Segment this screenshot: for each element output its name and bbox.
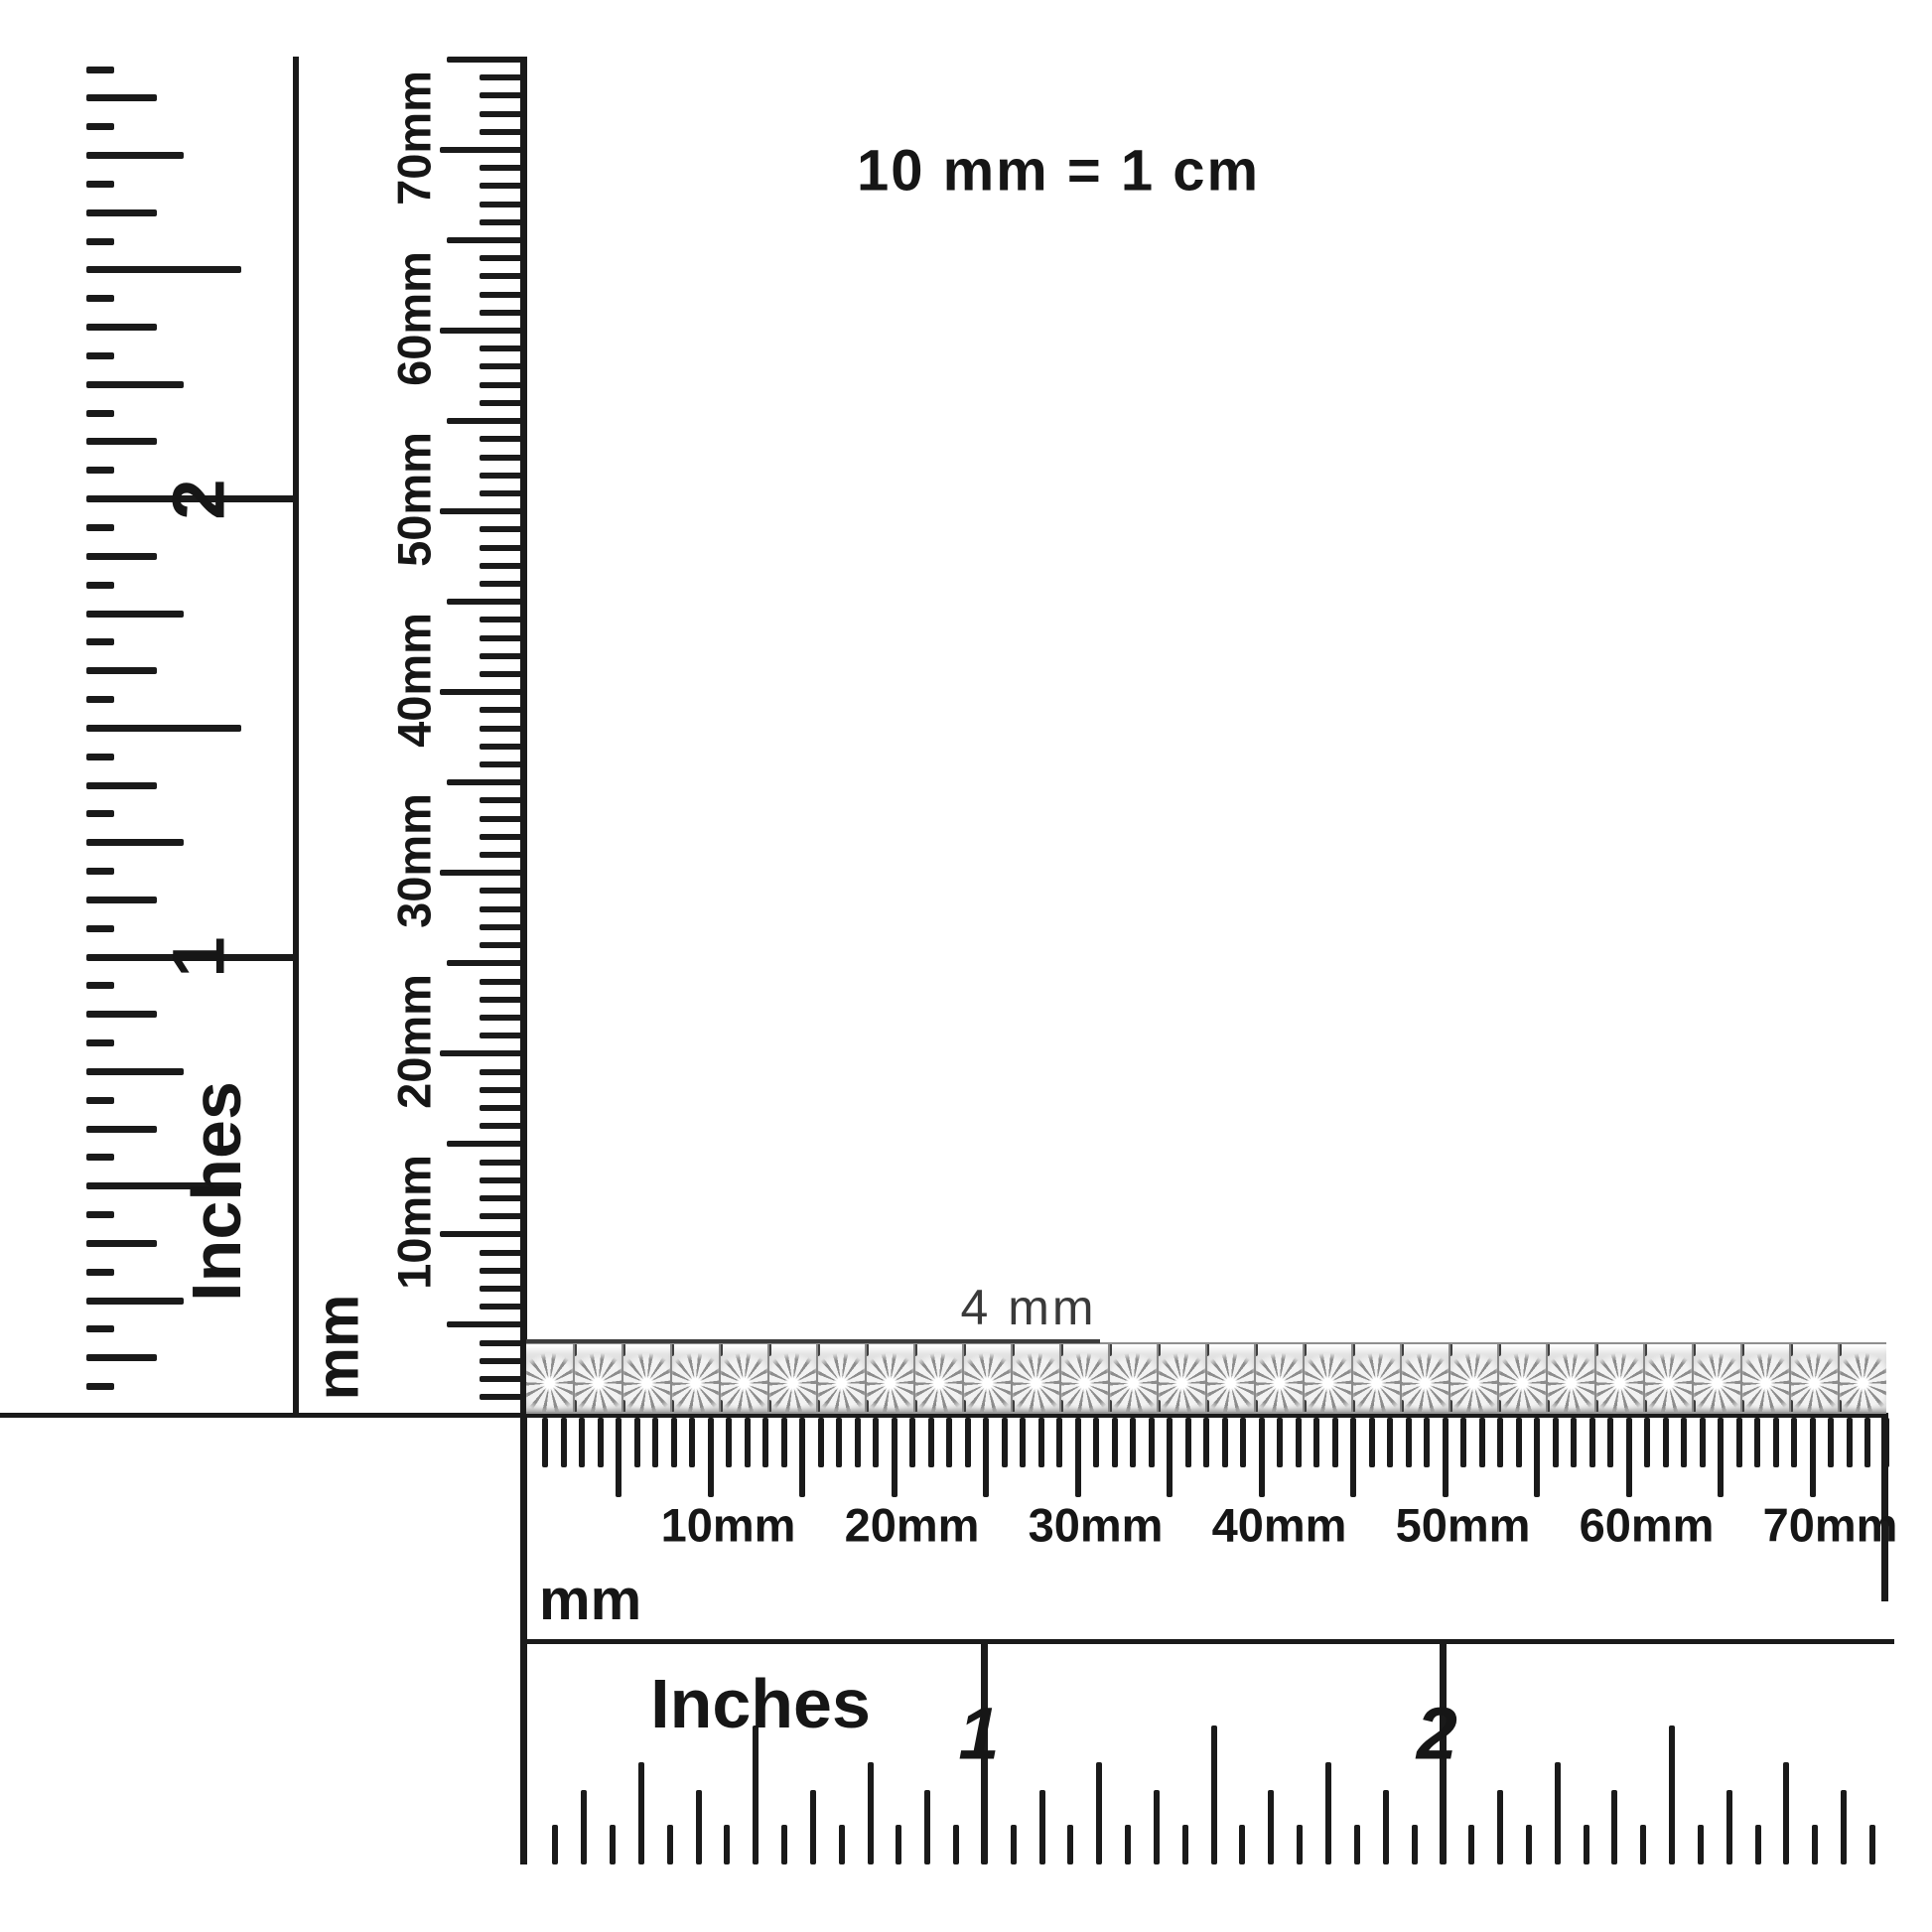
bottom-inch-tick xyxy=(667,1825,673,1864)
bottom-mm-tick xyxy=(1222,1418,1228,1467)
left-mm-tick xyxy=(447,1141,524,1147)
bracelet-link xyxy=(1157,1344,1205,1412)
bottom-mm-tick xyxy=(1663,1418,1669,1467)
bottom-mm-tick xyxy=(1369,1418,1375,1467)
bottom-mm-tick xyxy=(928,1418,934,1467)
bottom-mm-tick xyxy=(799,1418,805,1497)
left-mm-tick xyxy=(480,1015,524,1021)
left-mm-tick xyxy=(480,744,524,750)
left-mm-tick xyxy=(480,1376,524,1382)
bottom-inch-tick xyxy=(868,1762,874,1864)
bottom-inch-tick xyxy=(1698,1825,1704,1864)
left-inch-tick xyxy=(86,982,114,989)
left-mm-tick xyxy=(480,526,524,532)
left-mm-tick xyxy=(480,255,524,261)
left-mm-tick xyxy=(480,1177,524,1183)
bottom-mm-tick xyxy=(836,1418,842,1467)
bottom-inch-tick xyxy=(610,1825,616,1864)
left-inch-tick xyxy=(86,381,184,388)
bottom-inch-tick xyxy=(1526,1825,1532,1864)
left-mm-tick xyxy=(480,671,524,677)
bracelet-link xyxy=(1789,1344,1838,1412)
bottom-mm-tick xyxy=(1553,1418,1559,1467)
left-inch-tick xyxy=(86,467,114,474)
left-inch-tick xyxy=(86,324,157,331)
left-mm-tick xyxy=(447,1321,524,1327)
left-mm-tick xyxy=(480,1394,524,1400)
bracelet-link xyxy=(1351,1344,1400,1412)
bottom-mm-tick xyxy=(1313,1418,1319,1467)
bottom-inch-tick xyxy=(1726,1790,1732,1864)
bottom-mm-tick xyxy=(1203,1418,1209,1467)
bottom-mm-tick xyxy=(818,1418,824,1467)
bottom-mm-tick xyxy=(1497,1418,1503,1467)
bottom-inch-tick xyxy=(1669,1725,1675,1864)
bottom-mm-tick xyxy=(983,1418,989,1497)
bottom-inch-tick xyxy=(896,1825,901,1864)
left-inch-tick xyxy=(86,725,241,732)
left-inch-tick xyxy=(86,181,114,188)
left-mm-tick xyxy=(480,1087,524,1093)
bracelet-link xyxy=(1643,1344,1692,1412)
bottom-inch-tick xyxy=(924,1790,930,1864)
left-mm-tick xyxy=(440,870,524,876)
left-mm-tick xyxy=(447,599,524,605)
bottom-inch-tick xyxy=(1039,1790,1045,1864)
bottom-inch-tick xyxy=(1067,1825,1073,1864)
bottom-inch-tick xyxy=(552,1825,558,1864)
bottom-mm-tick xyxy=(781,1418,787,1467)
left-mm-tick xyxy=(480,273,524,279)
bottom-mm-tick xyxy=(1626,1418,1632,1497)
bottom-inch-tick xyxy=(953,1825,959,1864)
left-inch-tick xyxy=(86,925,114,932)
left-mm-tick xyxy=(480,490,524,496)
bottom-mm-label: 50mm xyxy=(1396,1498,1531,1553)
bottom-mm-tick xyxy=(616,1418,621,1497)
bottom-mm-tick xyxy=(1460,1418,1466,1467)
left-mm-label: 20mm xyxy=(387,974,442,1109)
bottom-inch-ruler-unit-label: Inches xyxy=(650,1664,871,1743)
left-mm-tick xyxy=(480,345,524,351)
left-inch-tick xyxy=(86,1011,157,1018)
bracelet-link xyxy=(1497,1344,1546,1412)
left-mm-tick xyxy=(480,1213,524,1219)
left-mm-tick xyxy=(480,563,524,569)
left-mm-tick xyxy=(480,92,524,98)
left-mm-tick xyxy=(480,942,524,948)
left-mm-tick xyxy=(480,202,524,207)
left-mm-tick xyxy=(480,111,524,117)
bottom-mm-tick xyxy=(1736,1418,1742,1467)
left-mm-tick xyxy=(480,979,524,985)
bracelet-link xyxy=(1254,1344,1303,1412)
bottom-mm-tick xyxy=(745,1418,751,1467)
left-mm-tick xyxy=(447,57,524,63)
left-inch-tick xyxy=(86,238,114,245)
left-mm-tick xyxy=(447,418,524,424)
left-inch-tick xyxy=(86,553,157,560)
tennis-bracelet xyxy=(526,1342,1886,1414)
left-inch-tick xyxy=(86,810,114,817)
bottom-inch-tick xyxy=(1182,1825,1188,1864)
left-inch-tick xyxy=(86,1325,114,1332)
bracelet-link xyxy=(1400,1344,1449,1412)
left-mm-tick xyxy=(480,726,524,732)
left-inch-tick xyxy=(86,1298,184,1305)
bottom-inch-tick xyxy=(1783,1762,1789,1864)
left-inch-tick xyxy=(86,67,114,73)
width-measure-line xyxy=(526,1339,1100,1343)
bracelet-link xyxy=(526,1344,573,1412)
bottom-mm-tick xyxy=(726,1418,732,1467)
bottom-mm-tick xyxy=(561,1418,567,1467)
left-mm-label: 70mm xyxy=(387,70,442,206)
bottom-mm-tick xyxy=(1075,1418,1081,1497)
left-mm-tick xyxy=(480,219,524,225)
left-mm-label: 60mm xyxy=(387,251,442,386)
bottom-mm-tick xyxy=(1810,1418,1816,1497)
left-mm-tick xyxy=(480,545,524,551)
left-mm-tick xyxy=(480,473,524,479)
left-mm-tick xyxy=(480,400,524,406)
bottom-inch-tick xyxy=(638,1762,644,1864)
bottom-mm-tick xyxy=(1718,1418,1724,1497)
bottom-mm-tick xyxy=(1534,1418,1540,1497)
bottom-mm-tick xyxy=(1791,1418,1797,1467)
left-mm-tick xyxy=(480,1250,524,1256)
bottom-mm-tick xyxy=(946,1418,952,1467)
bottom-inch-tick xyxy=(781,1825,787,1864)
bottom-mm-tick xyxy=(1424,1418,1430,1467)
bottom-mm-tick xyxy=(1056,1418,1062,1467)
bottom-mm-tick xyxy=(652,1418,658,1467)
bottom-mm-tick xyxy=(1387,1418,1393,1467)
left-inch-tick xyxy=(86,1154,114,1161)
left-inch-tick xyxy=(86,839,184,846)
bottom-mm-label: 60mm xyxy=(1580,1498,1715,1553)
bottom-inch-tick xyxy=(753,1725,759,1864)
left-mm-tick xyxy=(480,1358,524,1364)
left-mm-tick xyxy=(480,382,524,388)
left-mm-tick xyxy=(480,363,524,369)
left-mm-tick xyxy=(440,328,524,334)
left-inch-tick xyxy=(86,295,114,302)
left-mm-tick xyxy=(480,852,524,858)
left-mm-tick xyxy=(480,617,524,622)
left-mm-label: 50mm xyxy=(387,432,442,567)
bottom-mm-tick xyxy=(1406,1418,1412,1467)
bottom-inch-tick xyxy=(1154,1790,1160,1864)
left-mm-tick xyxy=(480,74,524,80)
bottom-mm-tick xyxy=(1644,1418,1650,1467)
left-mm-tick xyxy=(480,1105,524,1111)
left-inch-numeral: 2 xyxy=(157,479,241,519)
bracelet-link xyxy=(962,1344,1011,1412)
bottom-mm-tick xyxy=(1277,1418,1283,1467)
bottom-mm-tick xyxy=(873,1418,879,1467)
bottom-inch-tick xyxy=(1125,1825,1131,1864)
bottom-inch-ruler-top-edge xyxy=(526,1639,1894,1644)
left-inch-tick xyxy=(86,638,114,645)
bracelet-link xyxy=(1838,1344,1886,1412)
left-mm-tick xyxy=(480,653,524,659)
bracelet-link xyxy=(621,1344,670,1412)
bottom-inch-tick xyxy=(1584,1825,1589,1864)
left-mm-tick xyxy=(480,129,524,135)
bracelet-link xyxy=(670,1344,719,1412)
bottom-mm-tick xyxy=(1443,1418,1449,1497)
bracelet-link xyxy=(1011,1344,1059,1412)
left-inch-tick xyxy=(86,152,184,159)
bottom-inch-tick xyxy=(1497,1790,1503,1864)
bottom-mm-tick xyxy=(1167,1418,1173,1497)
bottom-inch-tick xyxy=(696,1790,702,1864)
left-mm-tick xyxy=(480,1033,524,1038)
bottom-inch-tick xyxy=(1640,1825,1646,1864)
bottom-mm-tick xyxy=(855,1418,861,1467)
left-inch-tick xyxy=(86,1354,157,1361)
bottom-inch-tick xyxy=(724,1825,730,1864)
left-mm-tick xyxy=(480,1123,524,1129)
left-mm-tick xyxy=(480,924,524,930)
left-inch-numeral: 1 xyxy=(157,936,241,977)
left-mm-tick xyxy=(480,1286,524,1292)
bracelet-link xyxy=(1740,1344,1789,1412)
left-inch-tick xyxy=(86,209,157,216)
bottom-inch-tick xyxy=(1239,1825,1245,1864)
bottom-mm-tick xyxy=(1093,1418,1099,1467)
left-mm-tick xyxy=(480,436,524,442)
bracelet-link xyxy=(865,1344,913,1412)
bottom-mm-label: 30mm xyxy=(1029,1498,1164,1553)
bottom-mm-tick xyxy=(689,1418,695,1467)
bracelet-width-label: 4 mm xyxy=(961,1279,1097,1336)
bottom-inch-tick xyxy=(1812,1825,1818,1864)
bracelet-link xyxy=(1303,1344,1351,1412)
left-mm-label: 30mm xyxy=(387,793,442,928)
left-inch-tick xyxy=(86,1269,114,1276)
left-inch-tick xyxy=(86,667,157,674)
bottom-inch-tick xyxy=(1354,1825,1360,1864)
bottom-mm-tick xyxy=(634,1418,640,1467)
bracelet-measurement-image: 10 mm = 1 cm 1210mm20mm30mm40mm50mm60mm7… xyxy=(0,0,1932,1932)
left-inch-tick xyxy=(86,897,157,903)
left-mm-tick xyxy=(447,960,524,966)
left-inch-tick xyxy=(86,410,114,417)
left-inch-tick xyxy=(86,1039,114,1046)
left-mm-tick xyxy=(480,1069,524,1075)
left-mm-tick xyxy=(480,816,524,822)
bracelet-link xyxy=(1205,1344,1254,1412)
bottom-mm-tick xyxy=(1479,1418,1485,1467)
bottom-mm-tick xyxy=(762,1418,768,1467)
bottom-inch-tick xyxy=(1325,1762,1331,1864)
bottom-inch-tick xyxy=(1297,1825,1303,1864)
bottom-mm-tick xyxy=(1828,1418,1834,1467)
left-inch-tick xyxy=(86,438,157,445)
left-inch-tick xyxy=(86,754,114,760)
bottom-inch-tick xyxy=(1841,1790,1847,1864)
left-inch-tick xyxy=(86,352,114,359)
left-inch-tick xyxy=(86,696,114,703)
bottom-mm-tick xyxy=(1112,1418,1118,1467)
bracelet-link xyxy=(573,1344,621,1412)
left-inch-tick xyxy=(86,1383,114,1390)
left-mm-tick xyxy=(447,237,524,243)
left-mm-tick xyxy=(480,1195,524,1201)
left-inch-ruler-unit-label: Inches xyxy=(177,1081,256,1302)
bracelet-link xyxy=(1059,1344,1108,1412)
bottom-mm-tick xyxy=(892,1418,897,1497)
bottom-mm-tick xyxy=(1883,1418,1889,1467)
left-inch-tick xyxy=(86,123,114,130)
bottom-mm-tick xyxy=(1681,1418,1687,1467)
bottom-mm-tick xyxy=(598,1418,604,1467)
left-mm-tick xyxy=(480,165,524,171)
bracelet-link xyxy=(719,1344,767,1412)
bottom-mm-tick xyxy=(1130,1418,1136,1467)
bottom-inch-tick xyxy=(1611,1790,1617,1864)
bottom-inch-tick xyxy=(1555,1762,1561,1864)
bottom-mm-tick xyxy=(909,1418,915,1467)
left-mm-tick xyxy=(440,508,524,514)
bottom-inch-tick xyxy=(1096,1762,1102,1864)
left-inch-tick xyxy=(86,582,114,589)
bottom-mm-tick xyxy=(1296,1418,1302,1467)
left-mm-tick xyxy=(480,310,524,316)
left-mm-tick xyxy=(480,761,524,767)
left-inch-tick xyxy=(86,868,114,875)
bottom-mm-tick xyxy=(1332,1418,1338,1467)
left-inch-tick xyxy=(86,94,157,101)
left-mm-tick xyxy=(480,834,524,840)
bottom-mm-tick xyxy=(1350,1418,1356,1497)
bottom-inch-tick xyxy=(581,1790,587,1864)
bottom-mm-tick xyxy=(1754,1418,1760,1467)
left-inch-tick xyxy=(86,782,157,789)
bottom-mm-tick xyxy=(1607,1418,1613,1467)
left-inch-tick xyxy=(86,524,114,531)
left-inch-tick xyxy=(86,611,184,618)
left-inch-tick xyxy=(86,1240,157,1247)
left-mm-label: 10mm xyxy=(387,1155,442,1290)
left-inch-tick xyxy=(86,1097,114,1104)
bracelet-link xyxy=(816,1344,865,1412)
left-mm-tick xyxy=(440,1050,524,1056)
left-inch-tick xyxy=(86,1126,157,1133)
bottom-mm-ruler-unit-label: mm xyxy=(539,1567,641,1633)
bracelet-link xyxy=(1108,1344,1157,1412)
left-inch-tick xyxy=(86,1211,114,1218)
left-mm-tick xyxy=(480,997,524,1003)
bottom-inch-tick xyxy=(1755,1825,1761,1864)
left-mm-tick xyxy=(480,455,524,461)
bottom-mm-tick xyxy=(708,1418,714,1497)
bottom-mm-tick xyxy=(1864,1418,1870,1467)
bracelet-link xyxy=(767,1344,816,1412)
left-mm-ruler-unit-label: mm xyxy=(304,1295,372,1401)
bottom-mm-tick xyxy=(1002,1418,1008,1467)
bottom-mm-tick xyxy=(579,1418,585,1467)
left-mm-tick xyxy=(480,707,524,713)
left-mm-tick xyxy=(480,635,524,641)
bottom-inch-tick xyxy=(1869,1825,1875,1864)
left-mm-tick xyxy=(480,1268,524,1274)
bottom-mm-label: 70mm xyxy=(1763,1498,1898,1553)
bottom-inch-tick xyxy=(1468,1825,1474,1864)
bottom-mm-tick xyxy=(1571,1418,1577,1467)
bottom-inch-tick xyxy=(810,1790,816,1864)
bottom-mm-label: 40mm xyxy=(1212,1498,1347,1553)
bottom-mm-tick xyxy=(1516,1418,1522,1467)
bottom-mm-tick xyxy=(1149,1418,1155,1467)
bottom-inch-numeral: 1 xyxy=(958,1692,999,1776)
left-mm-tick xyxy=(480,1340,524,1346)
bottom-mm-tick xyxy=(1773,1418,1779,1467)
bracelet-link xyxy=(1594,1344,1643,1412)
left-mm-label: 40mm xyxy=(387,613,442,748)
left-inch-tick xyxy=(86,266,241,273)
left-mm-tick xyxy=(480,888,524,894)
bottom-mm-tick xyxy=(1259,1418,1265,1497)
left-mm-tick xyxy=(480,183,524,189)
bottom-mm-label: 20mm xyxy=(845,1498,980,1553)
bracelet-link xyxy=(1692,1344,1740,1412)
bottom-mm-tick xyxy=(1020,1418,1026,1467)
left-mm-tick xyxy=(440,147,524,153)
left-mm-tick xyxy=(480,797,524,803)
bottom-mm-tick xyxy=(1589,1418,1595,1467)
bottom-mm-label: 10mm xyxy=(661,1498,796,1553)
left-inch-tick xyxy=(86,1068,184,1075)
left-mm-tick xyxy=(480,1160,524,1166)
bottom-mm-tick xyxy=(1038,1418,1044,1467)
left-mm-tick xyxy=(440,1231,524,1237)
left-mm-tick xyxy=(440,689,524,695)
bottom-mm-tick xyxy=(1700,1418,1706,1467)
bottom-inch-tick xyxy=(1268,1790,1274,1864)
bottom-mm-tick xyxy=(965,1418,971,1467)
scale-note: 10 mm = 1 cm xyxy=(857,138,1260,205)
bottom-inch-tick xyxy=(1011,1825,1017,1864)
bracelet-link xyxy=(913,1344,962,1412)
left-mm-tick xyxy=(480,906,524,912)
bottom-inch-numeral: 2 xyxy=(1417,1692,1457,1776)
left-inch-ruler-edge xyxy=(293,57,299,1418)
bottom-inch-tick xyxy=(1412,1825,1418,1864)
left-mm-tick xyxy=(447,779,524,785)
bracelet-link xyxy=(1449,1344,1497,1412)
bottom-mm-tick xyxy=(671,1418,677,1467)
bottom-mm-tick xyxy=(1847,1418,1853,1467)
bracelet-link xyxy=(1546,1344,1594,1412)
bottom-mm-tick xyxy=(542,1418,548,1467)
bottom-mm-tick xyxy=(1240,1418,1246,1467)
left-mm-tick xyxy=(480,581,524,587)
left-mm-tick xyxy=(480,1304,524,1310)
bottom-inch-tick xyxy=(1211,1725,1217,1864)
bottom-mm-tick xyxy=(1185,1418,1191,1467)
bottom-inch-tick xyxy=(839,1825,845,1864)
bottom-inch-tick xyxy=(1383,1790,1389,1864)
left-mm-tick xyxy=(480,292,524,298)
